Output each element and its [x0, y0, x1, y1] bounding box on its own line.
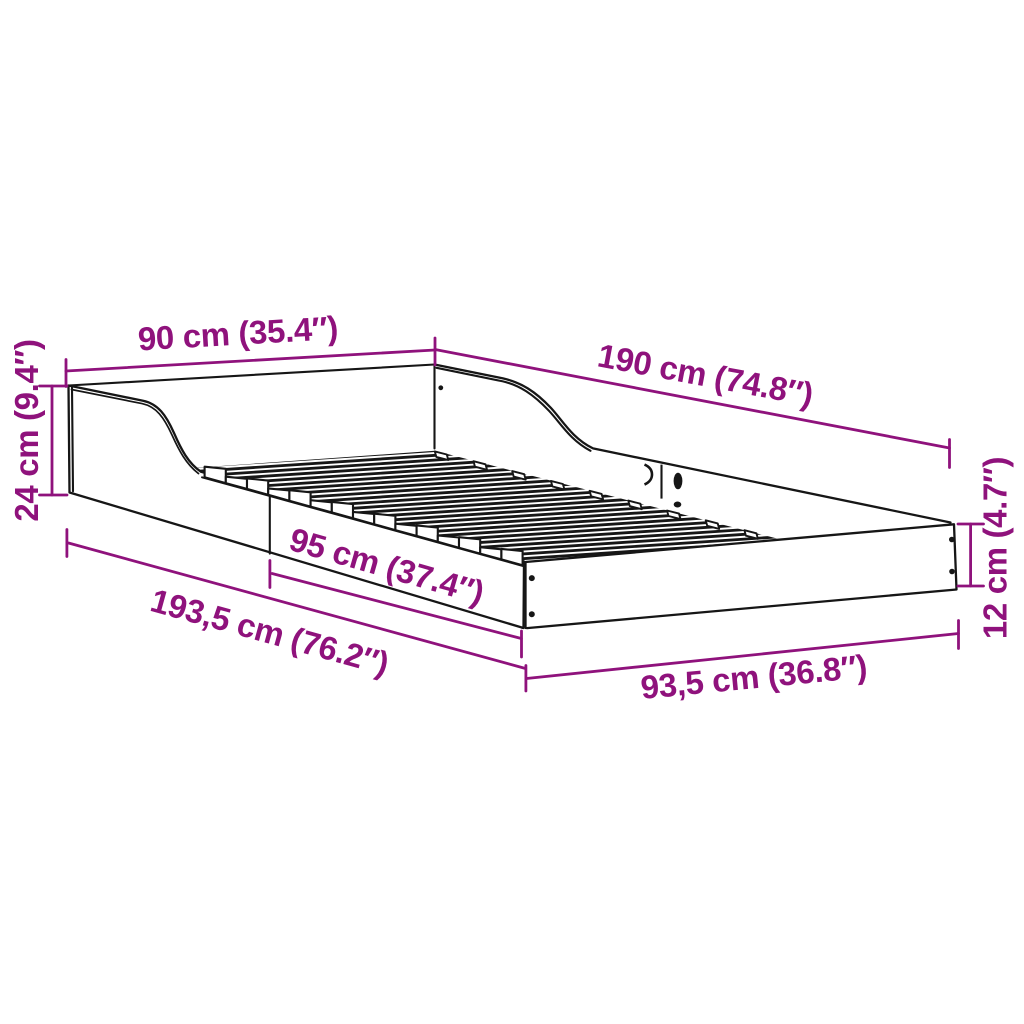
- svg-text:24 cm (9.4″): 24 cm (9.4″): [8, 339, 45, 521]
- svg-text:12 cm (4.7″): 12 cm (4.7″): [977, 457, 1014, 639]
